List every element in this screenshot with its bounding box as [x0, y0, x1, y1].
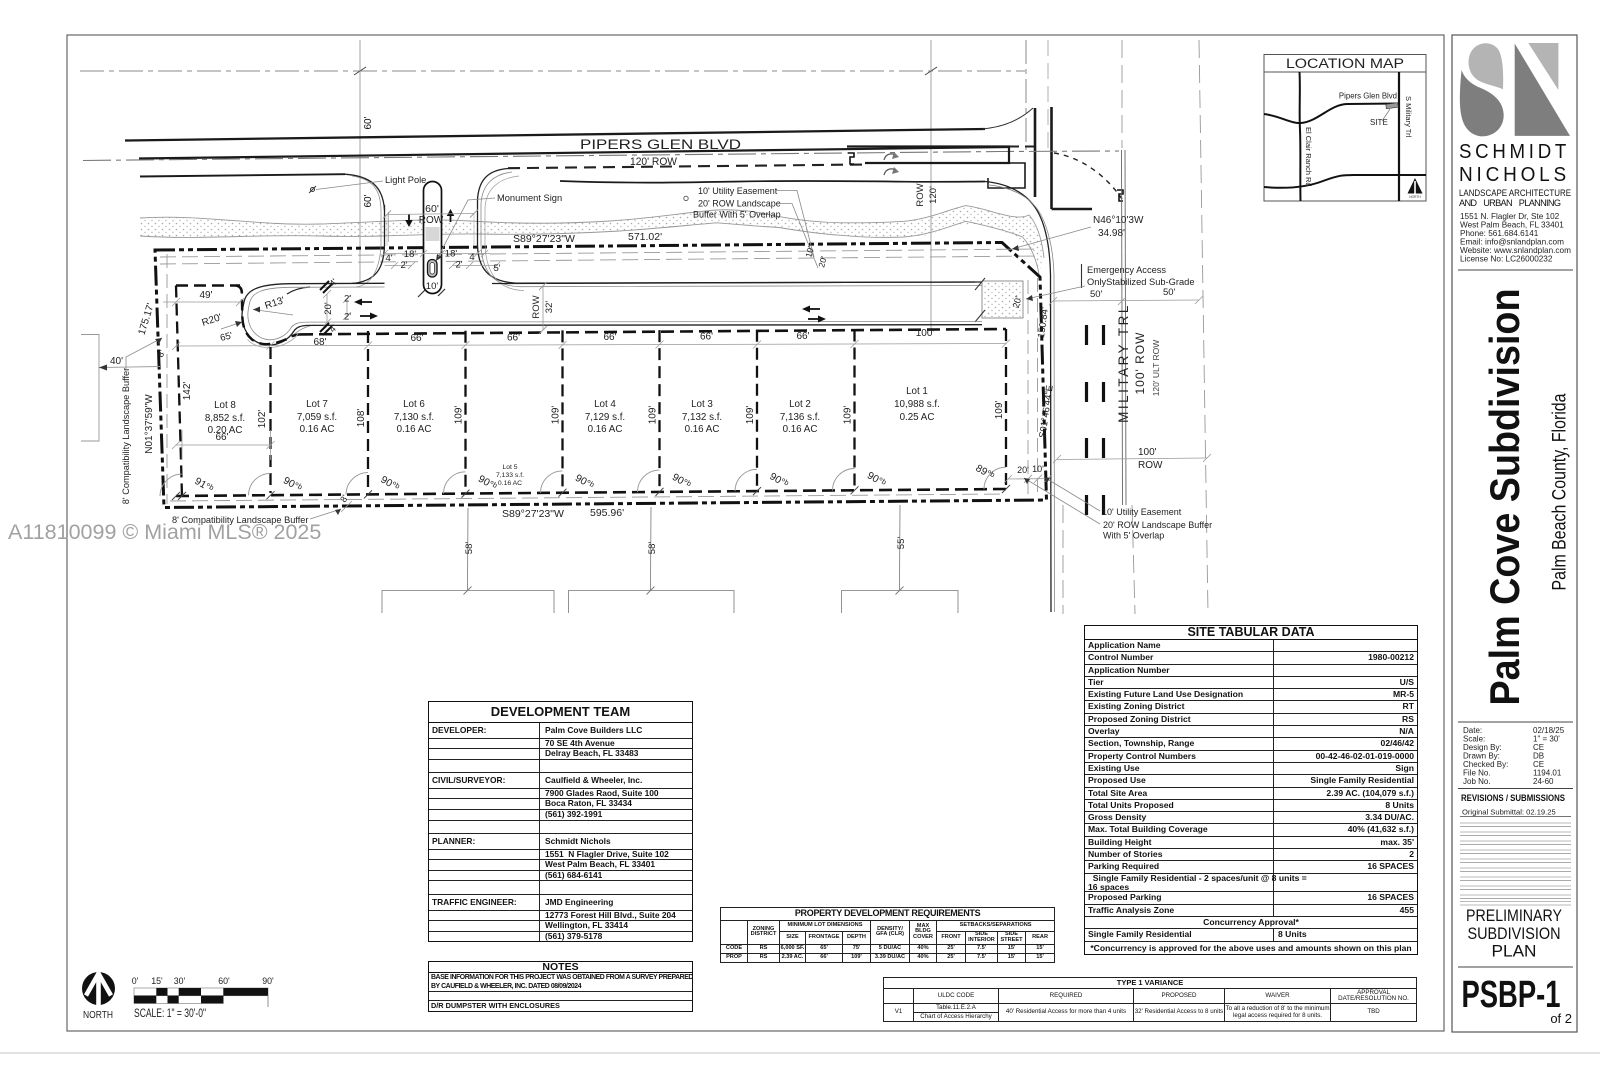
svg-text:PSBP-1: PSBP-1: [1462, 974, 1561, 1016]
svg-text:SUBDIVISION: SUBDIVISION: [1468, 925, 1561, 943]
svg-text:PLAN: PLAN: [1492, 943, 1537, 961]
svg-text:NICHOLS: NICHOLS: [1459, 164, 1570, 186]
svg-text:PRELIMINARY: PRELIMINARY: [1466, 907, 1562, 925]
svg-text:REVISIONS / SUBMISSIONS: REVISIONS / SUBMISSIONS: [1461, 793, 1565, 804]
svg-text:AND URBAN PLANNING: AND URBAN PLANNING: [1459, 198, 1561, 208]
svg-text:Palm Cove Subdivision: Palm Cove Subdivision: [1481, 289, 1528, 706]
svg-text:of 2: of 2: [1550, 1011, 1572, 1026]
svg-text:24-60: 24-60: [1533, 777, 1554, 786]
svg-text:SCHMIDT: SCHMIDT: [1459, 141, 1570, 163]
svg-text:Job No.: Job No.: [1463, 777, 1491, 786]
svg-text:LANDSCAPE ARCHITECTURE: LANDSCAPE ARCHITECTURE: [1459, 188, 1571, 198]
svg-text:Original Submittal: 02.19.25: Original Submittal: 02.19.25: [1462, 808, 1556, 817]
svg-text:License No: LC26000232: License No: LC26000232: [1460, 255, 1553, 264]
svg-text:Palm Beach County, Florida: Palm Beach County, Florida: [1550, 393, 1571, 590]
